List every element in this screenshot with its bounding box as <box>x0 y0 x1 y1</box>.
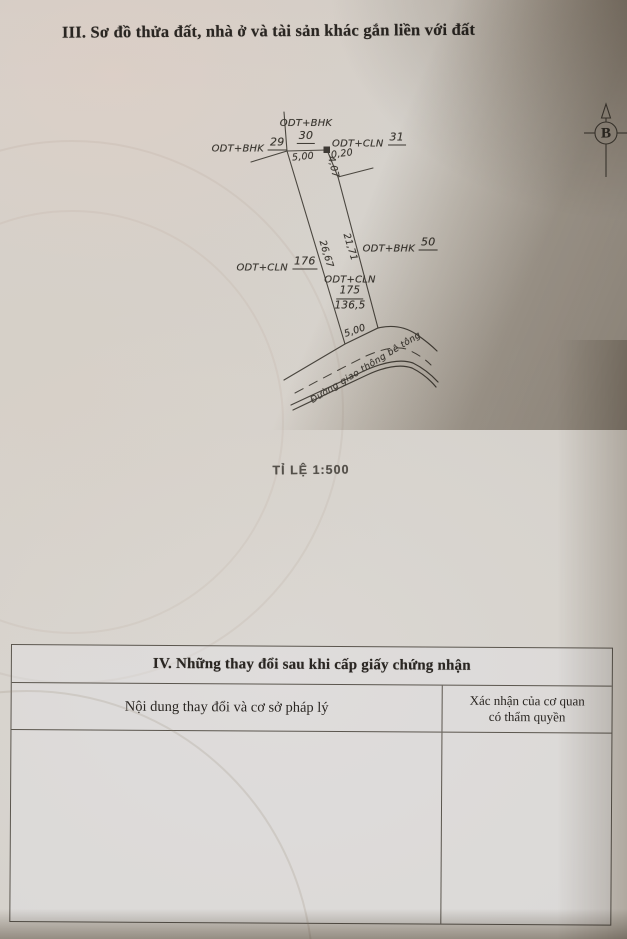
column-header-confirmation: Xác nhận của cơ quan có thẩm quyền <box>442 686 612 733</box>
land-use-code: ODT+BHK <box>363 244 415 255</box>
corner-shadow <box>0 0 627 430</box>
section-iv-title: IV. Những thay đổi sau khi cấp giấy chứn… <box>12 645 612 687</box>
land-use-code: ODT+BHK <box>212 144 264 155</box>
column-header-confirmation-line1: Xác nhận của cơ quan <box>470 693 585 710</box>
map-scale-label: TỈ LỆ 1:500 <box>272 463 349 478</box>
road-name-label: Đường giao thông bê tông <box>309 330 423 405</box>
measurement-right-side: 21,71 <box>341 232 360 262</box>
corner-shadow-dark <box>0 0 627 430</box>
column-header-content: Nội dung thay đổi và cơ sở pháp lý <box>11 683 441 732</box>
neighbor-parcel-176-label: ODT+CLN 176 <box>236 259 317 274</box>
confirmation-cell-empty <box>440 733 611 925</box>
parcel-number: 30 <box>297 130 315 144</box>
parcel-area: 136,5 <box>334 299 365 312</box>
watermark-arc <box>0 210 284 634</box>
measurement-top-width: 5,00 <box>292 151 315 164</box>
cadastral-drawing <box>0 0 627 500</box>
neighbor-parcel-30-label: ODT+BHK 30 <box>280 118 332 144</box>
parcel-number: 176 <box>292 255 318 270</box>
subject-parcel-175-label: ODT+CLN 175 136,5 <box>324 274 376 311</box>
corner-marker <box>324 147 331 154</box>
neighbor-parcel-50-label: ODT+BHK 50 <box>363 240 438 255</box>
table-body-row <box>10 730 611 925</box>
measurement-left-side: 26,67 <box>317 239 336 269</box>
parcel-number: 50 <box>419 236 437 251</box>
content-cell-empty <box>10 730 441 924</box>
compass-north-letter: B <box>601 126 611 143</box>
column-header-content-text: Nội dung thay đổi và cơ sở pháp lý <box>125 698 329 716</box>
watermark-arc <box>0 140 344 684</box>
parcel-number: 31 <box>388 131 406 146</box>
land-use-code: ODT+CLN <box>236 263 288 274</box>
section-iv-table: IV. Những thay đổi sau khi cấp giấy chứn… <box>9 644 613 926</box>
parcel-number: 175 <box>337 285 364 299</box>
parcel-number: 29 <box>268 136 286 151</box>
column-header-confirmation-line2: có thẩm quyền <box>489 709 566 726</box>
land-use-code: ODT+BHK <box>280 118 332 129</box>
neighbor-parcel-29-label: ODT+BHK 29 <box>212 140 287 155</box>
measurement-bottom-width: 5,00 <box>343 322 367 340</box>
table-header-row: Nội dung thay đổi và cơ sở pháp lý Xác n… <box>11 683 611 734</box>
scanned-certificate-page: III. Sơ đồ thửa đất, nhà ở và tài sản kh… <box>0 0 627 939</box>
section-iii-title: III. Sơ đồ thửa đất, nhà ở và tài sản kh… <box>62 19 532 42</box>
